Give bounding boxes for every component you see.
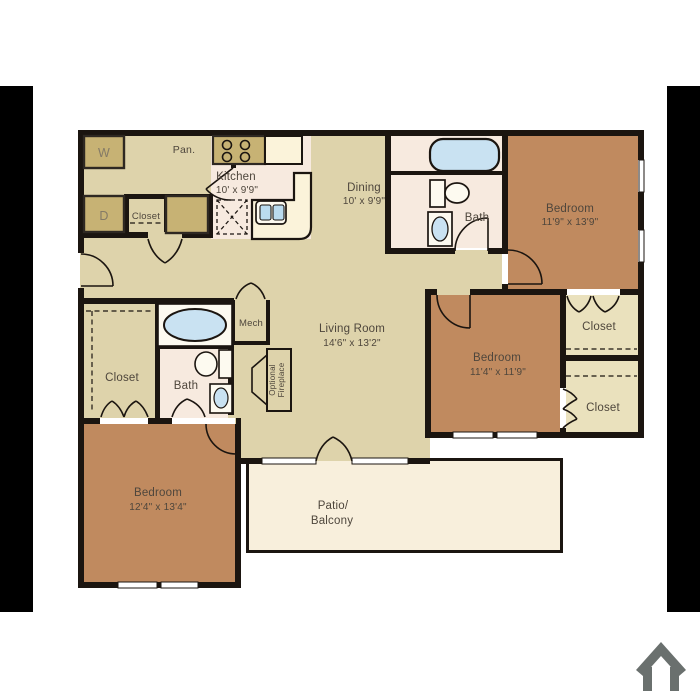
bedroom-top-right-label: Bedroom xyxy=(546,203,594,215)
dining-label: Dining xyxy=(347,182,381,194)
closet-upper-right-label: Closet xyxy=(582,321,616,333)
window xyxy=(639,160,644,192)
patio-floor xyxy=(249,461,560,550)
bedroom-bottom-left-label: Bedroom xyxy=(134,487,182,499)
bath-left-label: Bath xyxy=(174,380,198,392)
mech-label: Mech xyxy=(239,318,263,329)
toilet-tank xyxy=(430,180,445,207)
kitchen-dims: 10' x 9'9" xyxy=(216,185,258,196)
sink-basin xyxy=(273,205,284,220)
toilet-tank xyxy=(219,350,232,378)
bedroom-mid-right-dims: 11'4" x 11'9" xyxy=(470,367,526,378)
right-black-bar xyxy=(667,86,700,612)
bedroom-top-right-dims: 11'9" x 13'9" xyxy=(542,217,599,228)
pantry-label: Pan. xyxy=(173,144,195,156)
bath-top-label: Bath xyxy=(465,212,489,224)
window xyxy=(639,230,644,262)
dining-dims: 10' x 9'9" xyxy=(343,196,385,207)
bedroom-bottom-left-dims: 12'4" x 13'4" xyxy=(129,502,187,513)
vanity-sink xyxy=(432,217,448,241)
patio-label-line1: Patio/ xyxy=(318,500,349,512)
living-room-label: Living Room xyxy=(319,323,385,335)
patio-slider-panel xyxy=(352,458,408,464)
toilet-bowl xyxy=(445,183,469,203)
kitchen-cabinet xyxy=(166,196,208,233)
hall-to-bedrooms-floor xyxy=(388,250,502,295)
vanity-sink xyxy=(214,388,228,408)
living-room-dims: 14'6" x 13'2" xyxy=(323,338,381,349)
fireplace-label-line2: Fireplace xyxy=(277,362,286,397)
window xyxy=(118,582,157,588)
closet-lower-right-floor xyxy=(566,361,638,432)
patio-label-line2: Balcony xyxy=(311,515,353,527)
washer-label: W xyxy=(98,146,110,160)
kitchen-label: Kitchen xyxy=(216,171,256,183)
left-black-bar xyxy=(0,86,33,612)
walkin-closet-label: Closet xyxy=(105,372,139,384)
laundry-closet-label: Closet xyxy=(132,211,160,222)
bathtub xyxy=(430,139,499,171)
toilet-bowl xyxy=(195,352,217,376)
closet-lower-right-label: Closet xyxy=(586,402,620,414)
window xyxy=(497,432,537,438)
fireplace-label-line1: Optional xyxy=(268,364,277,395)
counter-top xyxy=(265,136,302,164)
bedroom-mid-right-label: Bedroom xyxy=(473,352,521,364)
window xyxy=(161,582,198,588)
house-icon xyxy=(636,642,686,691)
floor-plan-canvas: W D Closet Pan. Kitchen 10' x 9'9" Dinin… xyxy=(0,0,700,700)
floor-plan-page: W D Closet Pan. Kitchen 10' x 9'9" Dinin… xyxy=(0,0,700,700)
oval-bathtub xyxy=(164,309,226,341)
sink-basin xyxy=(260,205,271,220)
dryer-label: D xyxy=(99,209,108,223)
stove xyxy=(213,136,265,164)
fireplace-label: Optional Fireplace xyxy=(268,362,286,397)
patio-slider-panel xyxy=(262,458,316,464)
window xyxy=(453,432,493,438)
